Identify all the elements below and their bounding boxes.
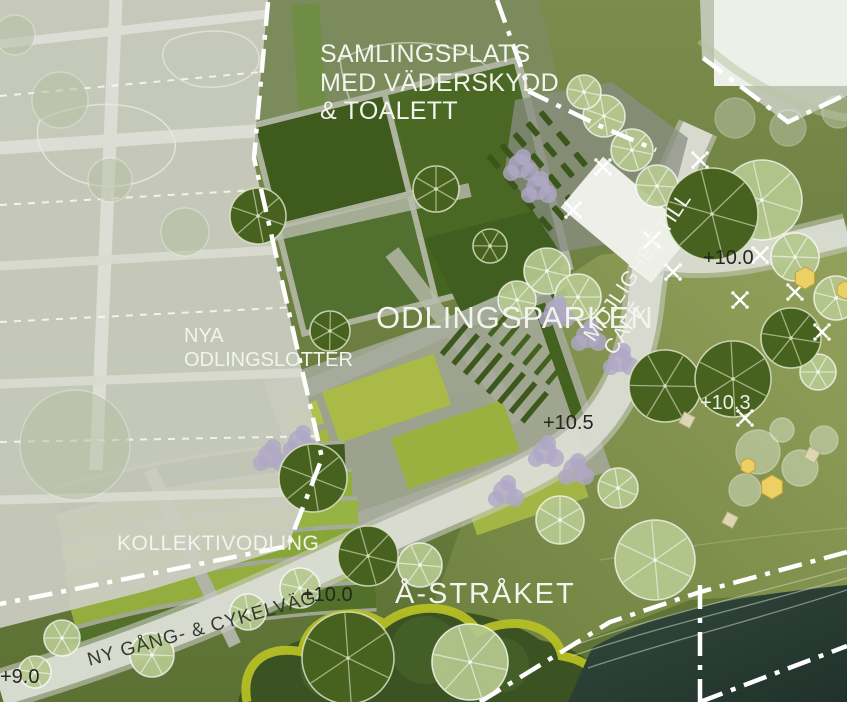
- map-graphics: [0, 0, 847, 702]
- site-plan-map: SAMLINGSPLATS MED VÄDERSKYDD & TOALETT M…: [0, 0, 847, 702]
